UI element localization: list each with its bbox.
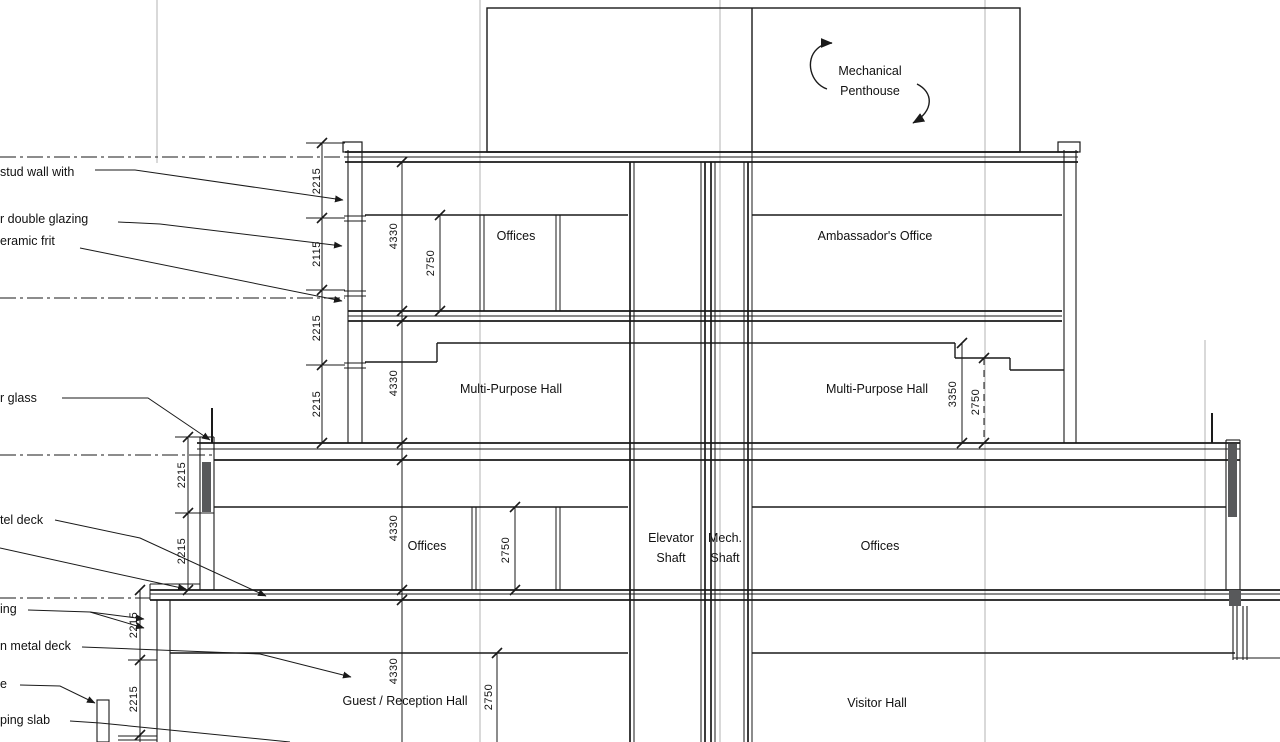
dim-mph-low-ceiling: 2750 (970, 389, 982, 415)
dim-top-chain-3: 2215 (311, 315, 323, 341)
dim-mph-high-ceiling: 3350 (947, 381, 959, 407)
dim-top-chain-2: 2115 (311, 241, 323, 267)
room-label-elevator-shaft: Elevator Shaft (639, 528, 703, 568)
architectural-section-drawing: Mechanical Penthouse Offices Ambassador'… (0, 0, 1280, 742)
dim-l4-floor-height: 4330 (388, 223, 400, 249)
leader-lines (0, 170, 351, 742)
room-label-ambassadors-office: Ambassador's Office (818, 226, 933, 246)
note-stud-wall: stud wall with (0, 165, 74, 179)
section-linework (0, 0, 1280, 742)
dim-bottom-chain-2: 2215 (128, 686, 140, 712)
room-label-mechanical-penthouse: Mechanical Penthouse (820, 61, 920, 101)
note-ing: ing (0, 602, 17, 616)
room-label-offices-top: Offices (497, 226, 536, 246)
note-double-glazing: r double glazing (0, 212, 88, 226)
dim-top-chain-1: 2215 (311, 168, 323, 194)
grid-lines (157, 0, 1205, 742)
interior-walls (170, 215, 1235, 653)
room-label-visitor-hall: Visitor Hall (847, 693, 907, 713)
dim-mid-chain-2: 2215 (176, 538, 188, 564)
dim-l2-floor-height: 4330 (388, 515, 400, 541)
dim-l1-floor-height: 4330 (388, 658, 400, 684)
shaft-walls (630, 152, 752, 742)
dim-l3-floor-height: 4330 (388, 370, 400, 396)
dim-l2-clear-height: 2750 (500, 537, 512, 563)
room-label-mech-shaft: Mech. Shaft (701, 528, 749, 568)
dim-top-chain-4: 2215 (311, 391, 323, 417)
dim-bottom-chain-1: 2215 (128, 612, 140, 638)
note-e: e (0, 677, 7, 691)
dim-l1-clear-height: 2750 (483, 684, 495, 710)
room-label-guest-reception-hall: Guest / Reception Hall (342, 691, 467, 711)
room-label-offices-mid-left: Offices (408, 536, 447, 556)
penthouse-walls (487, 8, 1020, 152)
note-clear-glass: r glass (0, 391, 37, 405)
note-metal-deck-upper: tel deck (0, 513, 43, 527)
room-label-offices-mid-right: Offices (861, 536, 900, 556)
dim-mid-chain-1: 2215 (176, 462, 188, 488)
note-ceramic-frit: eramic frit (0, 234, 55, 248)
room-label-multi-purpose-hall-left: Multi-Purpose Hall (460, 379, 562, 399)
room-label-multi-purpose-hall-right: Multi-Purpose Hall (826, 379, 928, 399)
note-on-metal-deck: n metal deck (0, 639, 71, 653)
note-topping-slab: ping slab (0, 713, 50, 727)
dim-l4-clear-height: 2750 (425, 250, 437, 276)
